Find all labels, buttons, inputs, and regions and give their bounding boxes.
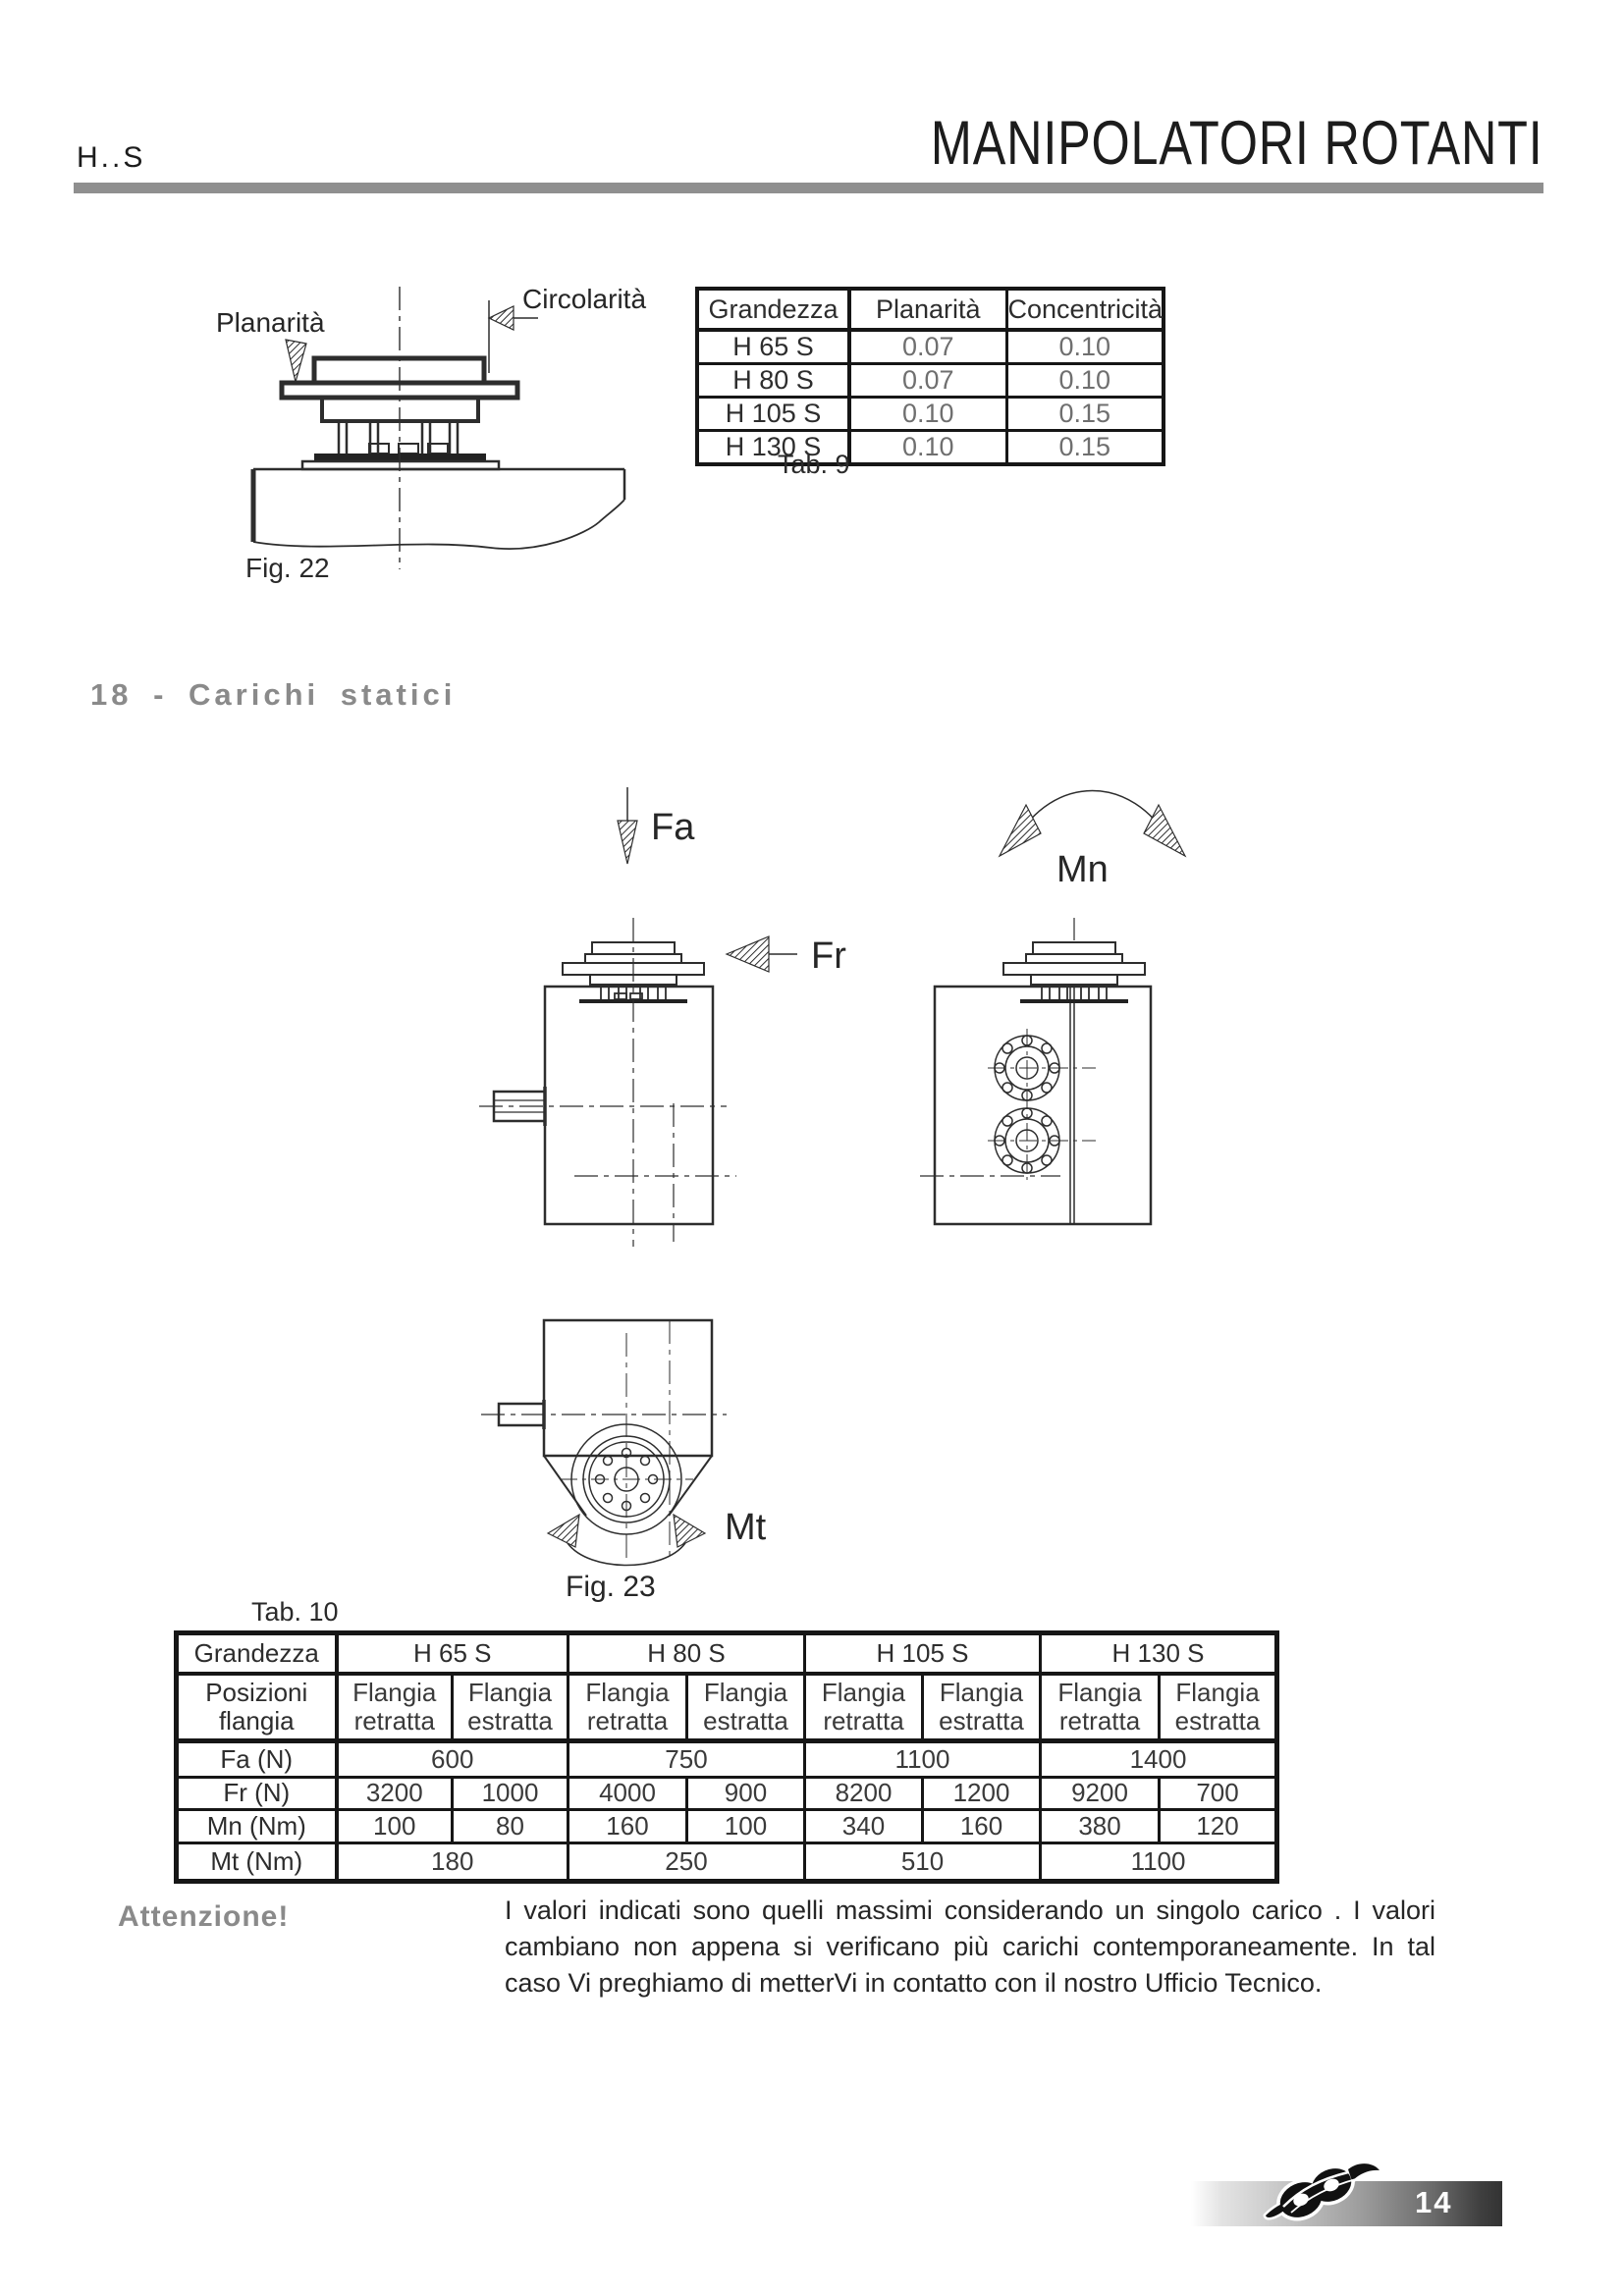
static-loads-table: Grandezza H 65 S H 80 S H 105 S H 130 S …	[174, 1630, 1279, 1884]
value-cell: 3200	[337, 1778, 453, 1810]
value-cell: 0.15	[1006, 431, 1164, 465]
mt-label: Mt	[725, 1507, 767, 1548]
value-cell: 0.10	[1006, 364, 1164, 398]
flange-retracted-header: Flangia retratta	[1041, 1674, 1160, 1741]
front-view-drawing	[920, 918, 1151, 1224]
table-row: Fa (N) 600 750 1100 1400	[177, 1741, 1277, 1778]
fig22-drawing: Planarità Circolarità	[177, 257, 668, 571]
size-header: H 130 S	[1041, 1633, 1277, 1675]
column-header: Planarità	[849, 289, 1006, 330]
planarity-label: Planarità	[216, 307, 325, 338]
value-cell: 8200	[805, 1778, 923, 1810]
planarity-arrow-icon	[286, 340, 306, 382]
value-cell: 180	[337, 1843, 568, 1882]
value-cell: 1100	[805, 1741, 1041, 1778]
value-cell: 100	[337, 1810, 453, 1843]
table-row: Mn (Nm) 100 80 160 100 340 160 380 120	[177, 1810, 1277, 1843]
size-header: H 80 S	[568, 1633, 805, 1675]
table-subheader-row: Posizioni flangia Flangia retratta Flang…	[177, 1674, 1277, 1741]
row-label: Fr (N)	[177, 1778, 337, 1810]
flange-position-header: Posizioni flangia	[177, 1674, 337, 1741]
value-cell: 0.10	[849, 398, 1006, 431]
manual-page: H..S MANIPOLATORI ROTANTI Planarità Circ…	[0, 0, 1624, 2296]
flange-retracted-header: Flangia retratta	[805, 1674, 923, 1741]
page-number: 14	[1415, 2185, 1452, 2220]
value-cell: 700	[1160, 1778, 1277, 1810]
value-cell: 1000	[453, 1778, 568, 1810]
fig22-caption: Fig. 22	[245, 553, 330, 584]
mt-arrow-left-icon	[548, 1515, 579, 1547]
column-header: Grandezza	[177, 1633, 337, 1675]
circularity-arrow-icon	[489, 306, 514, 330]
mt-arrow-right-icon	[674, 1515, 705, 1547]
side-view-drawing	[479, 918, 736, 1247]
value-cell: 0.07	[849, 364, 1006, 398]
fr-label: Fr	[811, 935, 846, 977]
value-cell: 160	[923, 1810, 1041, 1843]
row-label: Mn (Nm)	[177, 1810, 337, 1843]
flange-extended-header: Flangia estratta	[923, 1674, 1041, 1741]
size-header: H 65 S	[337, 1633, 568, 1675]
attention-label: Attenzione!	[118, 1900, 289, 1934]
row-label: Mt (Nm)	[177, 1843, 337, 1882]
table-row: H 65 S 0.07 0.10	[697, 330, 1164, 364]
fig23-caption: Fig. 23	[566, 1571, 656, 1603]
size-cell: H 65 S	[697, 330, 849, 364]
value-cell: 510	[805, 1843, 1041, 1882]
bottom-view-drawing: Mt	[481, 1320, 767, 1566]
table-row: Fr (N) 3200 1000 4000 900 8200 1200 9200…	[177, 1778, 1277, 1810]
mn-label: Mn	[1056, 849, 1109, 890]
value-cell: 9200	[1041, 1778, 1160, 1810]
value-cell: 1200	[923, 1778, 1041, 1810]
table-row: H 80 S 0.07 0.10	[697, 364, 1164, 398]
value-cell: 340	[805, 1810, 923, 1843]
fa-label: Fa	[651, 807, 695, 848]
flange-retracted-header: Flangia retratta	[337, 1674, 453, 1741]
attention-text: I valori indicati sono quelli massimi co…	[505, 1893, 1435, 2002]
size-cell: H 80 S	[697, 364, 849, 398]
value-cell: 750	[568, 1741, 805, 1778]
header-model-code: H..S	[77, 141, 145, 175]
value-cell: 250	[568, 1843, 805, 1882]
brand-logo-icon	[1260, 2156, 1385, 2234]
size-header: H 105 S	[805, 1633, 1041, 1675]
fr-arrow-icon	[727, 936, 769, 972]
tab10-caption: Tab. 10	[251, 1597, 339, 1628]
circularity-label: Circolarità	[522, 284, 646, 314]
value-cell: 80	[453, 1810, 568, 1843]
tolerances-table: Grandezza Planarità Concentricità H 65 S…	[695, 287, 1165, 466]
page-title: MANIPOLATORI ROTANTI	[931, 108, 1543, 179]
value-cell: 0.10	[1006, 330, 1164, 364]
column-header: Concentricità	[1006, 289, 1164, 330]
size-cell: H 105 S	[697, 398, 849, 431]
value-cell: 380	[1041, 1810, 1160, 1843]
table-row: H 130 S 0.10 0.15	[697, 431, 1164, 465]
tab9-caption: Tab. 9	[778, 450, 850, 480]
value-cell: 600	[337, 1741, 568, 1778]
value-cell: 900	[687, 1778, 805, 1810]
fig23-drawing: Fa Mn Fr	[442, 736, 1286, 1610]
table-header-row: Grandezza Planarità Concentricità	[697, 289, 1164, 330]
value-cell: 0.15	[1006, 398, 1164, 431]
value-cell: 160	[568, 1810, 687, 1843]
header-rule	[74, 183, 1543, 193]
flange-extended-header: Flangia estratta	[1160, 1674, 1277, 1741]
value-cell: 100	[687, 1810, 805, 1843]
table-row: H 105 S 0.10 0.15	[697, 398, 1164, 431]
table-header-row: Grandezza H 65 S H 80 S H 105 S H 130 S	[177, 1633, 1277, 1675]
fa-arrow-icon	[618, 821, 637, 864]
row-label: Fa (N)	[177, 1741, 337, 1778]
section-heading: 18 - Carichi statici	[90, 677, 456, 713]
value-cell: 1100	[1041, 1843, 1277, 1882]
mn-arrow-right-icon	[1144, 805, 1185, 856]
flange-retracted-header: Flangia retratta	[568, 1674, 687, 1741]
value-cell: 0.10	[849, 431, 1006, 465]
value-cell: 120	[1160, 1810, 1277, 1843]
table-row: Mt (Nm) 180 250 510 1100	[177, 1843, 1277, 1882]
flange-extended-header: Flangia estratta	[687, 1674, 805, 1741]
value-cell: 0.07	[849, 330, 1006, 364]
value-cell: 1400	[1041, 1741, 1277, 1778]
column-header: Grandezza	[697, 289, 849, 330]
mn-arrow-left-icon	[1000, 805, 1041, 856]
flange-extended-header: Flangia estratta	[453, 1674, 568, 1741]
value-cell: 4000	[568, 1778, 687, 1810]
